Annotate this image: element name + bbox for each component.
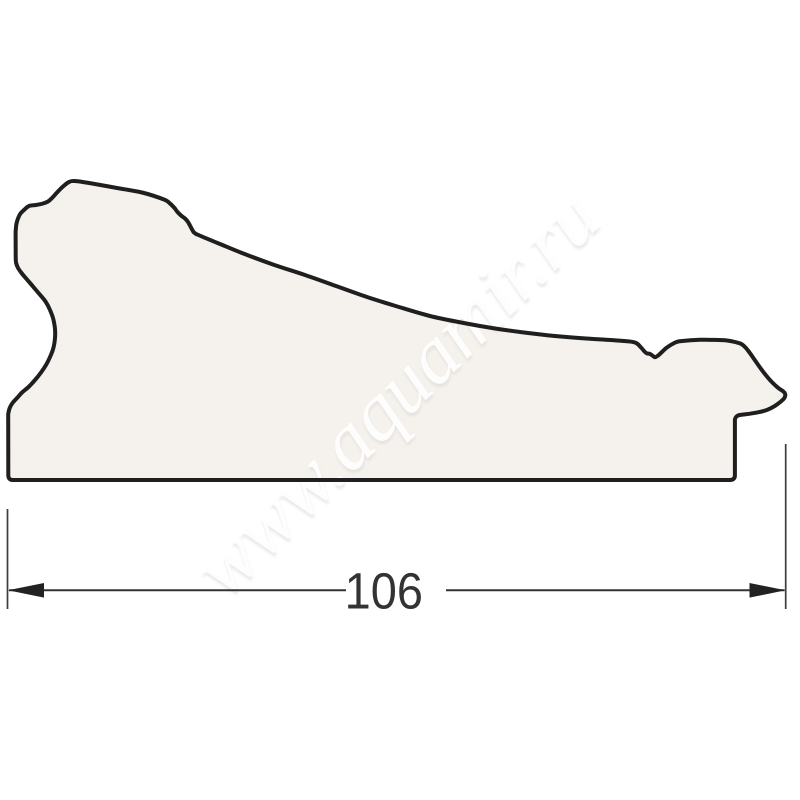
svg-text:106: 106 [345,564,423,620]
